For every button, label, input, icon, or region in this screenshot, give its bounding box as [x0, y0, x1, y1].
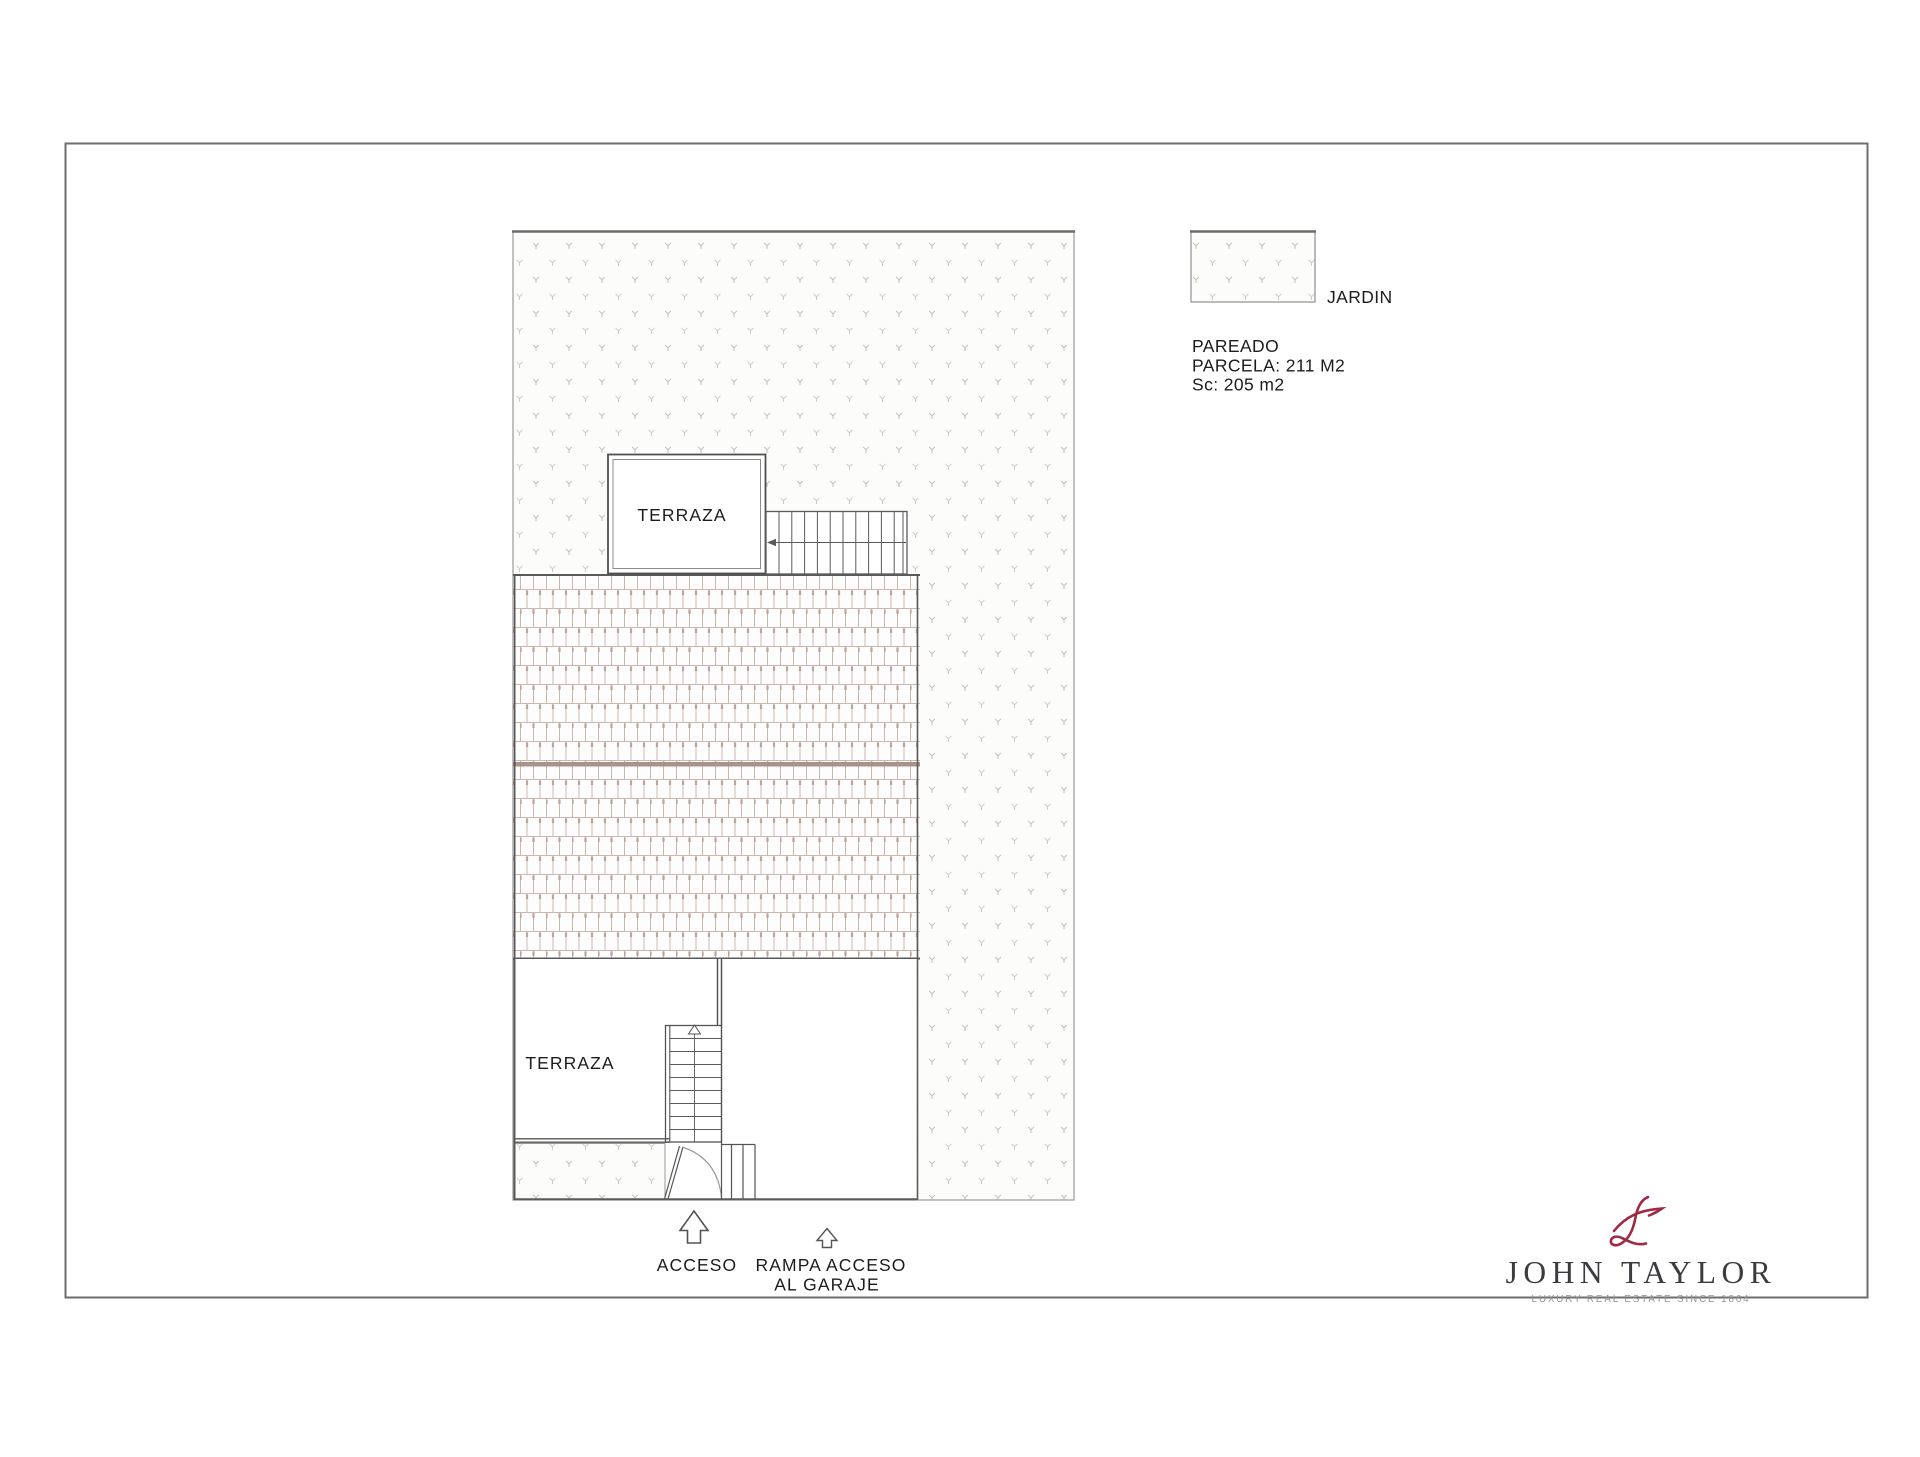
lower-garden-strip	[514, 1144, 665, 1200]
legend: JARDIN	[1190, 231, 1393, 307]
acceso-label: ACCESO	[657, 1255, 738, 1275]
legend-swatch	[1191, 231, 1315, 302]
property-info: PAREADO PARCELA: 211 M2 Sc: 205 m2	[1192, 336, 1345, 395]
legend-jardin-label: JARDIN	[1327, 287, 1393, 307]
brand-logo: JOHN TAYLOR LUXURY REAL ESTATE SINCE 186…	[1506, 1197, 1777, 1305]
jt-script-monogram-icon	[1611, 1197, 1662, 1245]
acceso-arrow-icon	[680, 1211, 708, 1243]
roof-area	[513, 574, 920, 959]
info-type-label: PAREADO	[1192, 336, 1279, 356]
interior-stairs	[666, 1025, 722, 1142]
upper-terrace-label: TERRAZA	[637, 505, 726, 525]
brand-name: JOHN TAYLOR	[1506, 1255, 1777, 1290]
info-sc-label: Sc: 205 m2	[1192, 375, 1285, 395]
rampa-label-line2: AL GARAJE	[774, 1275, 880, 1295]
info-parcela-label: PARCELA: 211 M2	[1192, 356, 1345, 376]
lower-terrace-label: TERRAZA	[525, 1053, 614, 1073]
access-annotations: ACCESO RAMPA ACCESO AL GARAJE	[657, 1211, 907, 1295]
roof-ridge-line	[513, 762, 920, 767]
brand-tagline: LUXURY REAL ESTATE SINCE 1864	[1532, 1294, 1751, 1305]
blueprint-canvas: TERRAZA TERRAZA	[0, 0, 1920, 1457]
upper-stairs	[766, 512, 907, 575]
rampa-label-line1: RAMPA ACCESO	[756, 1255, 907, 1275]
rampa-arrow-icon	[817, 1229, 837, 1248]
upper-terrace: TERRAZA	[607, 453, 766, 574]
